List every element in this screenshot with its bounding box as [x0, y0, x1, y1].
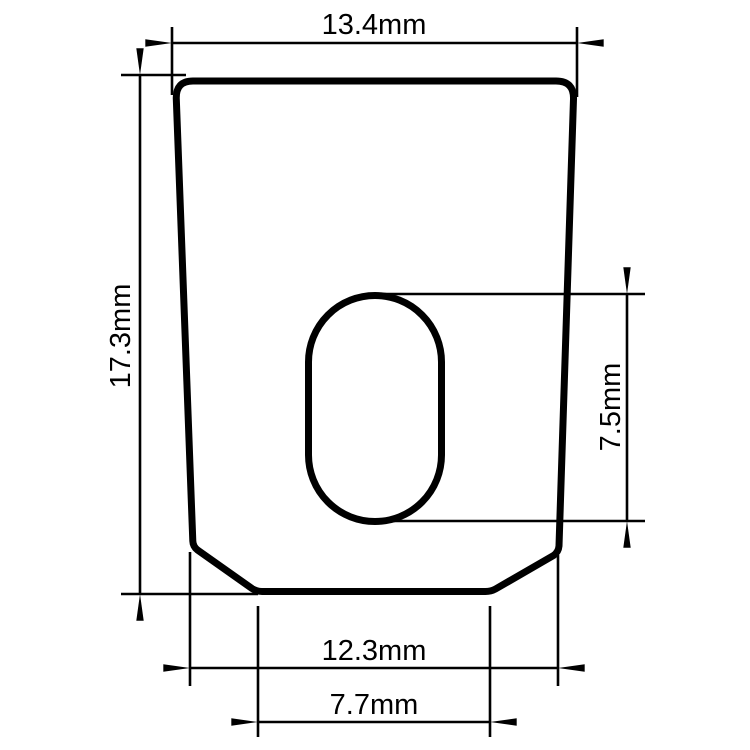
dimension-label-slot-height: 7.5mm	[595, 363, 627, 452]
dimension-label-bottom-width: 12.3mm	[322, 635, 427, 667]
dim-bottom-flat: 7.7mm	[258, 606, 490, 737]
drawing-canvas: 13.4mm 17.3mm 7.5mm 12.3mm 7.7mm	[0, 0, 750, 750]
dim-bottom-width: 12.3mm	[190, 552, 558, 686]
dim-slot-height: 7.5mm	[381, 294, 645, 521]
slot-cutout	[309, 296, 442, 522]
dimension-label-bottom-flat: 7.7mm	[330, 689, 419, 721]
part-outline	[176, 81, 573, 592]
technical-drawing: 13.4mm 17.3mm 7.5mm 12.3mm 7.7mm	[0, 0, 750, 750]
dimension-label-overall-height: 17.3mm	[105, 284, 137, 389]
part-view	[176, 81, 573, 592]
dimension-label-top-width: 13.4mm	[322, 9, 427, 41]
